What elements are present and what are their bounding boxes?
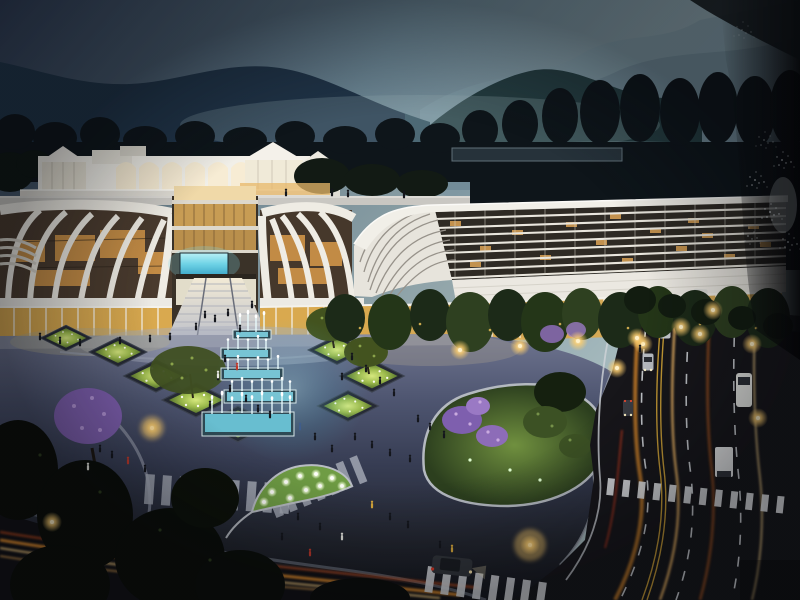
architectural-rendering-photo [0,0,800,600]
vignette [0,0,800,600]
rendering-canvas [0,0,800,600]
